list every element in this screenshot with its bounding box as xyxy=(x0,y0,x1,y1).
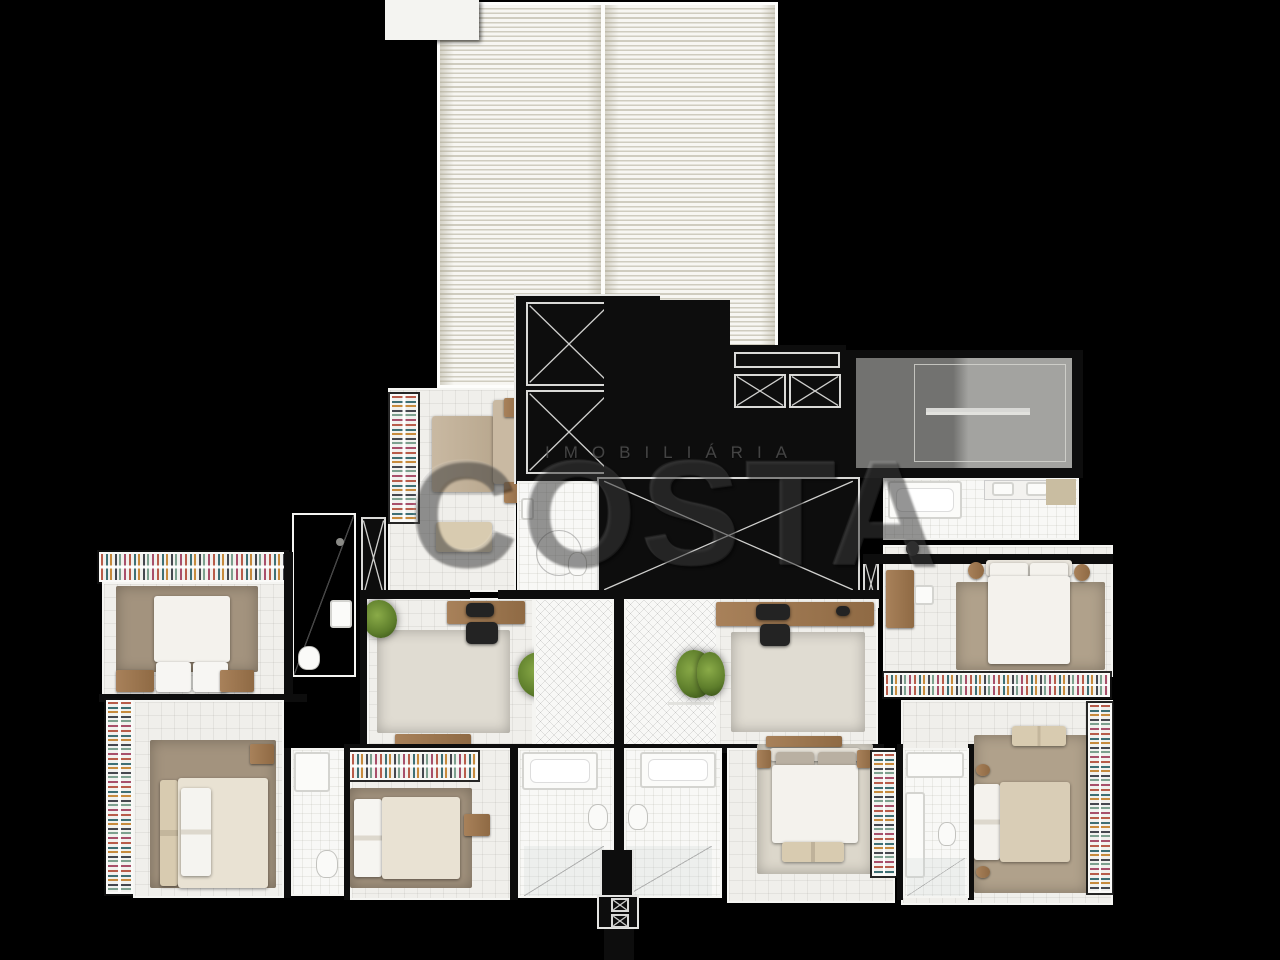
floor-plan-render: IMOBILIÁRIA COSTA xyxy=(0,0,1280,960)
sink xyxy=(1026,482,1048,496)
nightstand xyxy=(1074,564,1090,581)
desk-long xyxy=(716,602,874,626)
watermark-brand-name: COSTA xyxy=(408,438,942,588)
sink xyxy=(330,600,352,628)
nightstand xyxy=(976,764,990,776)
area-rug xyxy=(731,632,865,732)
shower-head-icon xyxy=(336,538,344,546)
toilet xyxy=(938,822,956,846)
wardrobe-rack-bottom-right xyxy=(1088,703,1112,893)
wardrobe-rack-bottom-3 xyxy=(350,752,478,780)
service-beam xyxy=(734,352,840,368)
office-chair xyxy=(760,624,790,646)
sink xyxy=(992,482,1014,496)
wall-segment xyxy=(284,748,291,898)
desk-items xyxy=(466,603,494,617)
bed-duvet xyxy=(772,765,858,843)
wall-segment xyxy=(284,552,293,698)
wardrobe-rack-top-right xyxy=(884,673,1110,697)
duct-shaft-4 xyxy=(611,898,629,912)
nightstand xyxy=(757,750,771,768)
service-column-stem xyxy=(604,929,634,960)
duct-shaft-1 xyxy=(734,374,786,408)
rooftop-box xyxy=(385,0,479,40)
bed-duvet xyxy=(1000,782,1070,862)
wall-segment xyxy=(360,598,367,748)
bathtub xyxy=(522,752,598,790)
bed-duvet xyxy=(382,797,460,879)
duct-shaft-2 xyxy=(789,374,841,408)
toilet xyxy=(298,646,320,670)
bath-mat xyxy=(1046,479,1076,505)
unit-stair-corridor-left xyxy=(534,598,614,748)
wardrobe-rack-left xyxy=(106,700,133,894)
bed-pillows xyxy=(974,784,1000,860)
area-rug xyxy=(377,630,510,733)
nightstand xyxy=(857,750,871,768)
plant xyxy=(697,652,725,696)
bed-headboard xyxy=(160,780,178,886)
desk-items xyxy=(836,606,850,616)
sink xyxy=(294,752,330,792)
wall-shelf xyxy=(766,736,842,747)
wall-segment xyxy=(510,748,518,900)
service-column xyxy=(600,850,634,896)
nightstand xyxy=(220,670,254,692)
wardrobe-rack-bottom-center xyxy=(872,752,896,876)
unit-stair-steps xyxy=(668,702,714,746)
elevator-shaft-1 xyxy=(526,302,612,386)
bed-pillows xyxy=(354,799,382,877)
corridor-divider-wall xyxy=(614,598,624,748)
bed-duvet xyxy=(988,576,1070,664)
nightstand xyxy=(976,866,990,878)
plant xyxy=(363,600,397,638)
bathtub xyxy=(640,752,716,788)
duct-shaft-5 xyxy=(611,914,629,928)
bed-duvet xyxy=(154,596,230,662)
wardrobe-rack-top-left xyxy=(99,552,287,582)
vanity-counter xyxy=(906,752,964,778)
toilet xyxy=(316,850,338,878)
pillow xyxy=(156,662,191,692)
shower xyxy=(907,858,965,896)
office-chair xyxy=(466,622,498,644)
bed-bench xyxy=(782,842,844,862)
elevator-shaft-small xyxy=(361,517,386,599)
shower xyxy=(626,846,712,896)
shower xyxy=(524,846,604,896)
nightstand xyxy=(116,670,154,692)
bench xyxy=(1012,726,1066,746)
nightstand xyxy=(464,814,490,836)
dresser xyxy=(250,744,274,764)
nightstand xyxy=(968,562,984,579)
bed-pillows xyxy=(181,788,211,876)
toilet xyxy=(588,804,608,830)
desk-items xyxy=(756,604,790,620)
toilet xyxy=(628,804,648,830)
